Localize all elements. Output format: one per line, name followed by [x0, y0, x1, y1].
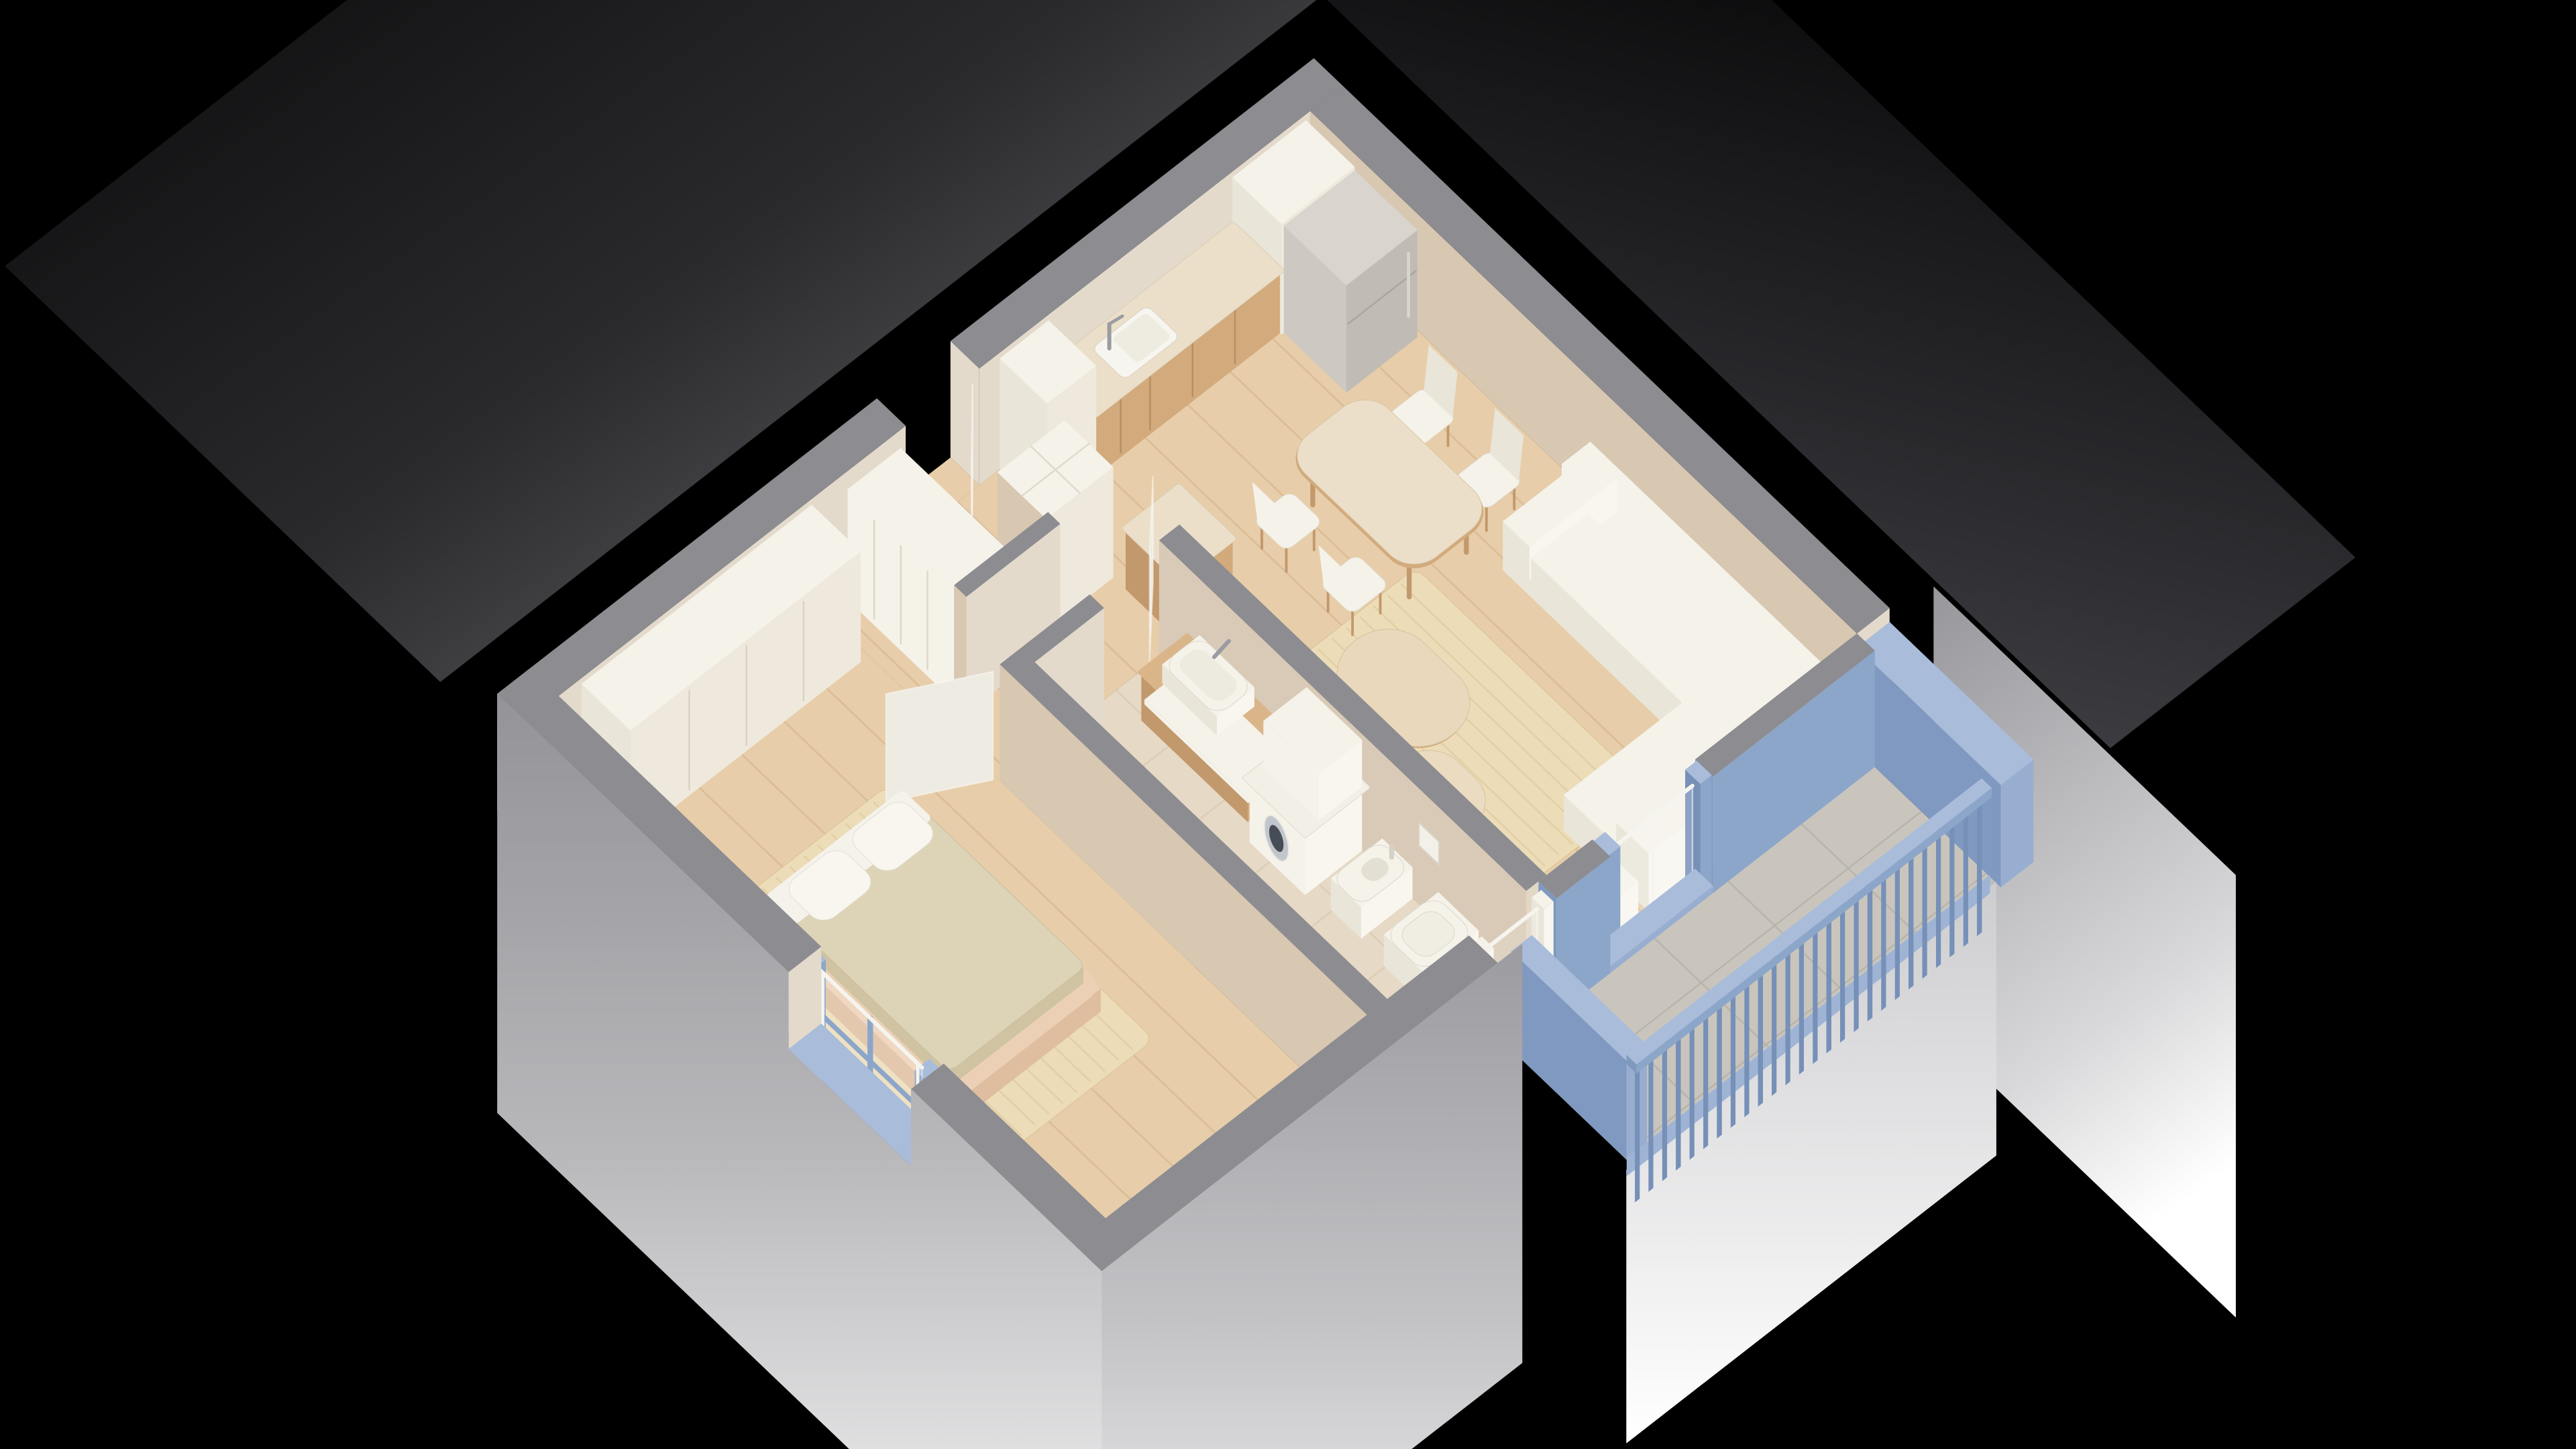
- apartment-isometric-render: [0, 0, 2576, 1449]
- bedroom-door-leaf: [886, 672, 994, 802]
